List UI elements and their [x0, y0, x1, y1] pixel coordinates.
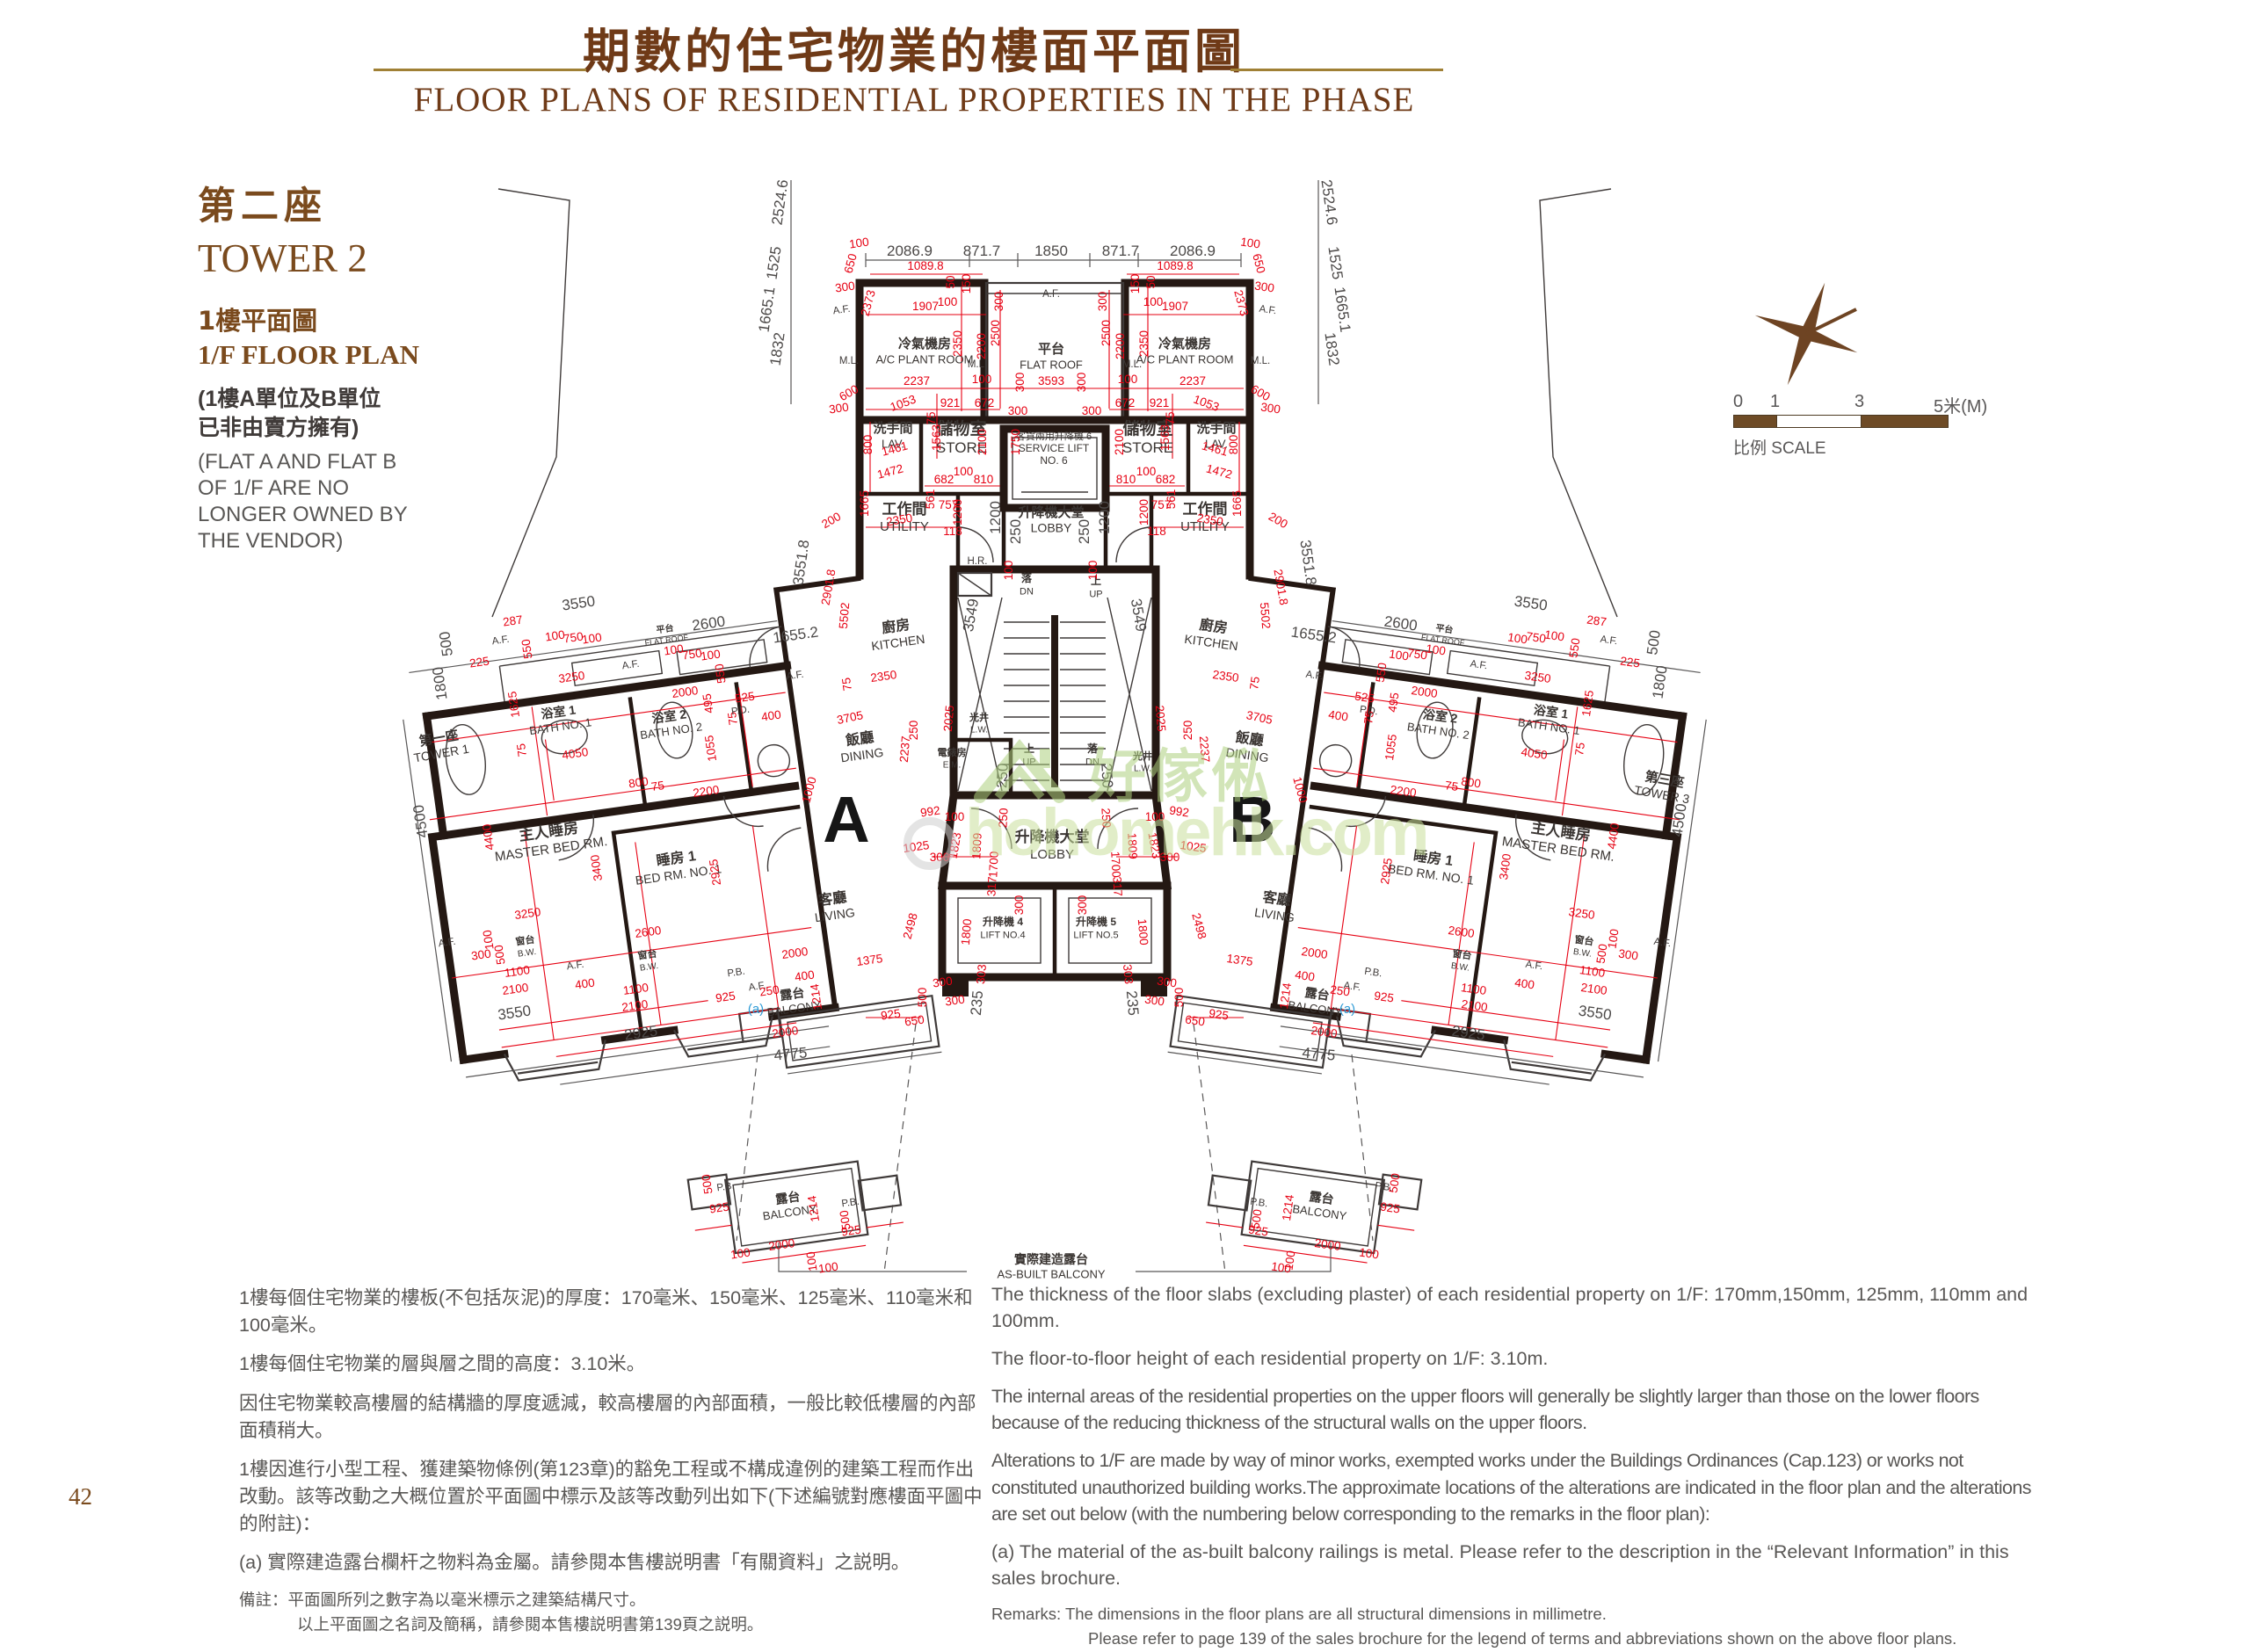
stair-label: 落DN: [1020, 571, 1034, 597]
dimension-label: 1625: [505, 691, 522, 719]
dimension-label: 300: [1082, 404, 1102, 417]
room-label: 睡房 1BED RM. NO. 1: [1387, 844, 1477, 888]
room-label: 飯廳DINING: [1225, 728, 1273, 765]
dimension-label: 300: [1076, 895, 1089, 916]
abbreviation-label: A.F.: [786, 670, 804, 683]
dimension-label: 400: [574, 976, 595, 992]
structural-dimension-label: 3551.8: [1296, 539, 1319, 586]
dimension-label: 75: [839, 677, 854, 692]
dimension-label: 300: [930, 851, 950, 864]
dimension-label: 2200: [975, 333, 988, 359]
structural-dimension-label: 1800: [430, 666, 451, 701]
dimension-label: 2000: [1411, 684, 1439, 700]
dimension-label: 561: [1165, 489, 1178, 510]
dimension-label: 2237: [897, 735, 913, 763]
dimension-label: 75: [1444, 779, 1459, 793]
dimension-label: 150: [960, 274, 973, 294]
note-cn-remark: 以上平面圖之名詞及簡稱，請參閱本售樓説明書第139頁之説明。: [297, 1613, 991, 1637]
dimension-label: 925: [1208, 1007, 1229, 1023]
dimension-label: 500: [1594, 943, 1610, 964]
dimension-label: 1907: [1162, 300, 1188, 313]
dimension-label: 550: [713, 663, 729, 684]
abbreviation-label: A.F.: [1525, 960, 1543, 973]
dimension-label: 1625: [1579, 689, 1596, 717]
dimension-label: 2498: [1189, 911, 1208, 940]
dimension-label: 400: [794, 968, 815, 984]
abbreviation-label: A.F.: [1305, 670, 1324, 683]
dimension-label: 500: [1249, 1208, 1265, 1229]
dimension-label: 1665: [858, 490, 871, 517]
room-label: 升降機 4LIFT NO.4: [980, 915, 1025, 940]
dimension-label: 921: [940, 396, 961, 409]
room-label: 窗台B.W.: [515, 933, 538, 960]
note-en-remark: Remarks: The dimensions in the floor pla…: [991, 1603, 2043, 1626]
dimension-label: 1100: [504, 963, 531, 980]
dimension-label: 500: [492, 944, 508, 965]
abbreviation-label: A.F.: [832, 304, 851, 317]
dimension-label: 3705: [1245, 708, 1274, 727]
dimension-label: 2350: [1212, 668, 1240, 685]
dimension-label: 1089.8: [907, 259, 943, 272]
dimension-label: 921: [1150, 396, 1170, 409]
dimension-label: 1100: [1460, 981, 1487, 997]
dimension-label: 1100: [1579, 963, 1606, 980]
structural-dimension-label: 1665.1: [1331, 286, 1354, 333]
dimension-label: 287: [1586, 613, 1607, 629]
room-label: 浴室 2BATH NO. 2: [637, 705, 703, 742]
adjacent-tower-label: 第一座TOWER 1: [410, 726, 470, 765]
note-en-remark: Please refer to page 139 of the sales br…: [1088, 1627, 2043, 1650]
dimension-label: 1214: [805, 1194, 822, 1222]
dimension-label: 100: [1145, 810, 1165, 823]
dimension-label: 2100: [621, 997, 649, 1014]
dimension-label: 1563: [930, 424, 943, 451]
dimension-label: 3705: [836, 708, 865, 727]
structural-dimension-label: 1850: [1034, 243, 1068, 259]
structural-dimension-label: 3550: [1578, 1003, 1613, 1024]
dimension-label: 2350: [869, 668, 897, 685]
dimension-label: 100: [1425, 642, 1446, 658]
as-built-balcony-label: 實際建造露台AS-BUILT BALCONY: [997, 1252, 1105, 1280]
dimension-label: 50: [944, 275, 957, 288]
alteration-marker: (a): [1339, 1002, 1355, 1017]
room-label: 露台BALCONY: [1292, 1187, 1350, 1223]
dimension-label: 2025: [941, 705, 957, 732]
dimension-label: 250: [1181, 721, 1194, 741]
dimension-label: 1100: [622, 981, 650, 997]
dimension-label: 200: [819, 510, 843, 531]
structural-dimension-label: 871.7: [963, 243, 1001, 259]
room-label: 升降機 5LIFT NO.5: [1073, 915, 1118, 940]
dimension-label: 300: [470, 947, 491, 963]
structural-dimension-label: 3551.8: [790, 539, 813, 586]
structural-dimension-label: 235: [968, 990, 986, 1017]
dimension-label: 118: [1147, 525, 1166, 538]
dimension-label: 100: [1270, 1260, 1291, 1276]
dimension-label: 150: [1129, 274, 1142, 294]
dimension-label: 1053: [1192, 393, 1221, 414]
room-label: 平台FLAT ROOF: [1020, 341, 1083, 371]
dimension-label: 1700: [1108, 851, 1123, 878]
dimension-label: 1055: [1383, 733, 1399, 761]
dimension-label: 250: [996, 808, 1010, 828]
dimension-label: 500: [838, 1209, 853, 1230]
dimension-label: 525: [734, 690, 755, 706]
dimension-label: 100: [1358, 1246, 1379, 1262]
dimension-label: 5502: [1258, 602, 1274, 629]
dimension-label: 2901.8: [819, 569, 838, 606]
dimension-label: 495: [1386, 692, 1402, 713]
structural-dimension-label: 1525: [764, 245, 785, 280]
dimension-label: 925: [1373, 989, 1394, 1005]
dimension-label: 2000: [1301, 945, 1329, 961]
structural-dimension-label: 1832: [1321, 331, 1342, 366]
dimension-label: 3250: [1524, 669, 1552, 685]
abbreviation-label: A.F.: [1470, 659, 1488, 672]
dimension-label: 225: [468, 655, 490, 670]
dimension-label: 2925: [707, 859, 723, 887]
structural-dimension-label: 4500: [410, 804, 432, 839]
structural-dimension-label: 1665.1: [756, 286, 779, 333]
structural-dimension-label: 4775: [1302, 1044, 1336, 1063]
structural-dimension-label: 2925: [1451, 1023, 1486, 1044]
dimension-label: 1800: [959, 918, 975, 946]
dimension-label: 400: [1294, 968, 1315, 984]
dimension-label: 300: [1012, 895, 1026, 916]
structural-dimension-label: 2925: [623, 1023, 658, 1044]
dimension-label: 300: [1096, 292, 1109, 312]
dimension-label: 118: [943, 525, 962, 538]
dimension-label: 2350: [1137, 330, 1150, 357]
dimension-label: 3400: [1497, 852, 1513, 880]
dimension-label: 4050: [1521, 745, 1549, 762]
dimension-label: 650: [1184, 1013, 1205, 1029]
structural-dimension-label: 2524.6: [769, 178, 792, 226]
dimension-label: 500: [916, 988, 929, 1008]
dimension-label: 1472: [875, 462, 904, 482]
dimension-label: 100: [729, 1246, 751, 1262]
dimension-label: 225: [1619, 655, 1640, 670]
dimension-label: 300: [1008, 404, 1028, 417]
dimension-label: 100: [700, 648, 721, 663]
dimension-label: 300: [1617, 947, 1638, 963]
dimension-label: 2000: [1314, 1236, 1342, 1253]
dimension-label: 2500: [989, 320, 1002, 346]
dimension-label: 317: [1110, 876, 1124, 896]
structural-dimension-label: 3550: [561, 593, 596, 614]
dimension-label: 75: [925, 411, 938, 424]
dimension-label: 3400: [588, 854, 605, 882]
dimension-label: 2000: [767, 1236, 795, 1253]
dimension-label: 100: [1143, 295, 1164, 308]
structural-dimension-label: 2086.9: [1170, 243, 1216, 259]
dimension-label: 300: [932, 975, 953, 990]
dimension-label: 500: [700, 1173, 715, 1194]
dimension-label: 495: [700, 692, 716, 714]
room-label: 電錶房E.M.: [938, 746, 967, 770]
dimension-label: 500: [1172, 988, 1186, 1008]
dimension-label: 100: [972, 373, 992, 386]
dimension-label: 2200: [1114, 333, 1127, 359]
dimension-label: 800: [1460, 775, 1481, 791]
dimension-label: 650: [1250, 252, 1267, 275]
dimension-label: 1472: [1205, 462, 1234, 482]
dimension-label: 75: [514, 743, 529, 757]
alteration-marker: (a): [748, 1002, 764, 1017]
structural-dimension-label: 2600: [691, 613, 726, 634]
dimension-label: 2100: [1113, 429, 1126, 455]
dimension-label: 1025: [902, 838, 930, 855]
structural-dimension-label: 2524.6: [1317, 178, 1340, 226]
abbreviation-label: A.F.: [491, 634, 510, 648]
dimension-label: 2000: [1310, 1024, 1339, 1040]
dimension-label: 100: [954, 465, 974, 478]
structural-dimension-label: 3550: [497, 1003, 532, 1024]
dimension-label: 1907: [912, 300, 939, 313]
dimension-label: 100: [1002, 561, 1015, 581]
dimension-label: 1700: [986, 851, 1001, 878]
dimension-label: 303: [974, 964, 989, 985]
abbreviation-label: M.L.: [839, 356, 859, 366]
structural-dimension-label: 250: [1076, 519, 1092, 544]
structural-dimension-label: 250: [993, 763, 1011, 788]
dimension-label: 75: [1164, 411, 1177, 424]
dimension-label: 1563: [1158, 424, 1172, 451]
structural-dimension-label: 1200: [987, 501, 1004, 534]
dimension-label: 100: [804, 1250, 820, 1272]
dimension-label: 672: [975, 396, 995, 409]
dimension-label: 75: [1572, 742, 1587, 757]
dimension-label: 100: [1086, 561, 1100, 581]
dimension-label: 5502: [837, 602, 853, 629]
dimension-label: 100: [1543, 628, 1564, 644]
room-label: 浴室 2BATH NO. 2: [1406, 705, 1472, 742]
abbreviation-label: A.F.: [1653, 937, 1672, 950]
dimension-label: 3593: [1038, 374, 1064, 388]
structural-dimension-label: 500: [1644, 629, 1664, 656]
dimension-label: 550: [1567, 637, 1583, 658]
room-label: 飯廳DINING: [838, 728, 885, 765]
dimension-label: 2500: [1100, 320, 1113, 346]
structural-dimension-label: 1832: [767, 331, 788, 366]
dimension-label: 672: [1115, 396, 1136, 409]
dimension-label: 992: [919, 804, 940, 820]
dimension-label: 300: [834, 279, 855, 295]
dimension-label: 300: [1160, 851, 1180, 864]
flat-letter: B: [1229, 783, 1275, 856]
dimension-label: 561: [924, 489, 937, 510]
abbreviation-label: P.B.: [727, 967, 746, 980]
structural-dimension-label: 3549: [1128, 598, 1150, 634]
dimension-label: 650: [904, 1013, 925, 1029]
dimension-label: 1053: [889, 393, 918, 414]
abbreviation-label: A.F.: [621, 659, 640, 672]
abbreviation-label: A.F.: [1042, 289, 1060, 300]
dimension-label: 100: [581, 631, 602, 647]
dimension-label: 682: [934, 473, 954, 486]
dimension-label: 287: [502, 613, 523, 629]
abbreviation-label: P.B.: [1375, 1181, 1394, 1194]
abbreviation-label: M.L.: [968, 359, 987, 370]
stair-label: 上UP: [1022, 742, 1035, 767]
dimension-label: 2100: [976, 429, 989, 455]
dimension-label: 1089.8: [1157, 259, 1193, 272]
room-label: 廚房KITCHEN: [867, 614, 925, 653]
dimension-label: 300: [1013, 373, 1027, 393]
dimension-label: 2350: [951, 330, 964, 357]
adjacent-tower-label: 第三座TOWER 3: [1633, 767, 1694, 807]
room-label: 窗台B.W.: [1450, 947, 1473, 974]
room-label: 冷氣機房A/C PLANT ROOM: [1136, 336, 1233, 366]
structural-dimension-label: 500: [436, 630, 456, 657]
structural-dimension-label: 1200: [1096, 501, 1113, 534]
stair-label: 落DN: [1085, 742, 1100, 767]
dimension-label: 2025: [1153, 705, 1169, 732]
abbreviation-label: H.R.: [968, 556, 988, 567]
dimension-label: 2498: [901, 911, 920, 940]
dimension-label: 925: [880, 1007, 901, 1023]
dimension-label: 2100: [1580, 981, 1608, 997]
dimension-label: 300: [1253, 279, 1274, 295]
dimension-label: 100: [848, 235, 869, 251]
dimension-label: 1809: [969, 832, 984, 859]
structural-dimension-label: 4500: [1669, 802, 1690, 837]
dimension-label: 1375: [1226, 952, 1254, 968]
structural-dimension-label: 3550: [1513, 593, 1549, 614]
room-label: 浴室 1BATH NO. 1: [1517, 700, 1583, 737]
room-label: 廚房KITCHEN: [1184, 614, 1242, 653]
dimension-label: 100: [817, 1260, 838, 1276]
dimension-label: 1375: [855, 952, 883, 968]
structural-dimension-label: 235: [1123, 990, 1142, 1017]
dimension-label: 2100: [1461, 997, 1489, 1014]
structural-dimension-label: 3549: [960, 598, 982, 634]
dimension-label: 1200: [951, 499, 964, 525]
dimension-label: 303: [1121, 964, 1136, 985]
dimension-label: 1055: [702, 735, 719, 763]
abbreviation-label: A.F.: [566, 960, 584, 973]
dimension-label: 300: [1075, 373, 1088, 393]
abbreviation-label: M.L.: [1251, 356, 1270, 366]
abbreviation-label: P.D.: [730, 705, 750, 718]
dimension-label: 800: [628, 775, 649, 791]
room-label: 浴室 1BATH NO. 1: [526, 700, 592, 737]
structural-dimension-label: 2086.9: [887, 243, 933, 259]
dimension-label: 300: [828, 401, 849, 417]
dimension-label: 4050: [561, 745, 589, 762]
room-label: 窗台B.W.: [637, 947, 660, 974]
structural-dimension-label: 1800: [1650, 664, 1671, 699]
room-label: 光井L.W.: [1132, 750, 1152, 773]
structural-dimension-label: 1525: [1325, 245, 1346, 280]
dimension-label: 400: [1327, 708, 1348, 724]
abbreviation-label: A.F.: [1600, 634, 1618, 648]
dimension-label: 2237: [1179, 374, 1206, 388]
dimension-label: 2237: [1197, 735, 1213, 763]
room-label: 光井L.W.: [969, 711, 989, 735]
dimension-label: 300: [1143, 993, 1165, 1009]
dimension-label: 3250: [1568, 905, 1596, 922]
dimension-label: 1809: [1125, 832, 1140, 859]
dimension-label: 2100: [501, 981, 529, 997]
dimension-label: 300: [1259, 401, 1281, 417]
room-label: 窗台B.W.: [1572, 933, 1595, 960]
dimension-label: 200: [1267, 510, 1290, 531]
dimension-label: 1665: [1230, 490, 1244, 517]
dimension-label: 2000: [780, 945, 809, 961]
dimension-label: 4400: [1605, 822, 1622, 850]
dimension-label: 925: [708, 1200, 729, 1216]
dimension-label: 550: [519, 638, 535, 659]
dimension-label: 100: [945, 810, 965, 823]
dimension-label: 925: [1379, 1200, 1400, 1216]
dimension-label: 925: [715, 989, 736, 1005]
dimension-label: 2925: [1378, 857, 1395, 885]
dimension-label: 75: [650, 779, 665, 793]
dimension-label: 2000: [671, 684, 699, 700]
dimension-label: 2237: [904, 374, 930, 388]
dimension-label: 810: [1116, 473, 1136, 486]
structural-dimension-label: 250: [1007, 519, 1024, 544]
abbreviation-label: P.B.: [1364, 967, 1383, 980]
dimension-label: 75: [1247, 676, 1262, 691]
abbreviation-label: A.F.: [438, 937, 456, 950]
dimension-label: 1750: [1009, 429, 1022, 455]
dimension-label: 100: [938, 295, 958, 308]
dimension-label: 992: [1168, 804, 1189, 820]
dimension-label: 800: [1227, 435, 1240, 455]
dimension-label: 3250: [513, 905, 541, 922]
dimension-label: 1214: [808, 982, 824, 1011]
dimension-label: 1214: [1280, 1193, 1296, 1221]
dimension-label: 525: [1354, 690, 1375, 706]
structural-dimension-label: 4775: [773, 1044, 808, 1063]
room-label: 升降機大堂LOBBY: [1018, 504, 1084, 534]
dimension-label: 100: [1118, 373, 1138, 386]
dimension-label: 1025: [1179, 838, 1208, 855]
abbreviation-label: A.F.: [1259, 304, 1277, 317]
dimension-label: 250: [1099, 808, 1113, 828]
dimension-label: 2000: [771, 1024, 799, 1040]
dimension-label: 300: [944, 993, 965, 1009]
structural-dimension-label: 250: [1098, 763, 1115, 788]
dimension-label: 50: [1144, 275, 1158, 288]
dimension-label: 2600: [1448, 924, 1476, 940]
dimension-label: 100: [1136, 465, 1157, 478]
room-label: 升降機大堂LOBBY: [1015, 828, 1090, 862]
flat-letter: A: [823, 783, 869, 856]
dimension-label: 800: [861, 435, 875, 455]
dimension-label: 550: [1374, 662, 1390, 683]
structural-dimension-label: 871.7: [1102, 243, 1140, 259]
dimension-label: 317: [984, 876, 998, 896]
dimension-label: 3250: [557, 669, 585, 685]
note-cn-remark: 備註：平面圖所列之數字為以毫米標示之建築結構尺寸。: [239, 1589, 991, 1612]
dimension-label: 300: [992, 292, 1005, 312]
dimension-label: 1200: [1137, 499, 1150, 525]
dimension-label: 2600: [634, 924, 662, 940]
dimension-label: 1800: [1136, 918, 1151, 946]
dimension-label: 810: [974, 473, 994, 486]
floor-plan-drawing: 冷氣機房A/C PLANT ROOM冷氣機房A/C PLANT ROOM平台FL…: [0, 0, 2250, 1590]
dimension-label: 400: [760, 708, 781, 724]
abbreviation-label: P.B.: [716, 1181, 736, 1194]
dimension-label: 650: [841, 252, 859, 275]
dimension-label: 682: [1156, 473, 1176, 486]
dimension-label: 400: [1513, 976, 1535, 992]
structural-dimension-label: 2600: [1383, 613, 1419, 634]
service-lift-label: 客貨兩用升降機 6SERVICE LIFTNO. 6: [1016, 430, 1092, 467]
